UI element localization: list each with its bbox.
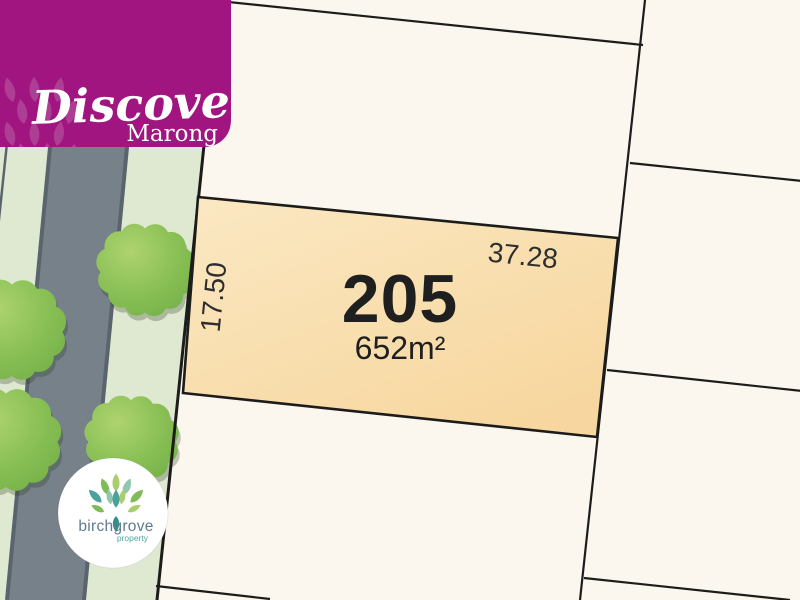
lot-number-label: 205 [342,261,458,337]
logo-circle [58,458,168,568]
badge-subtitle: Marong [126,121,218,147]
street-tree-icon [96,224,195,316]
lot-area-label: 652m² [355,330,446,366]
birchgrove-logo: birchgrove property [58,458,168,568]
estate-map-page: 205 652m² 37.28 17.50 Discover Marong bi… [0,0,800,600]
logo-tagline: property [117,533,149,543]
estate-map: 205 652m² 37.28 17.50 Discover Marong bi… [0,0,800,600]
